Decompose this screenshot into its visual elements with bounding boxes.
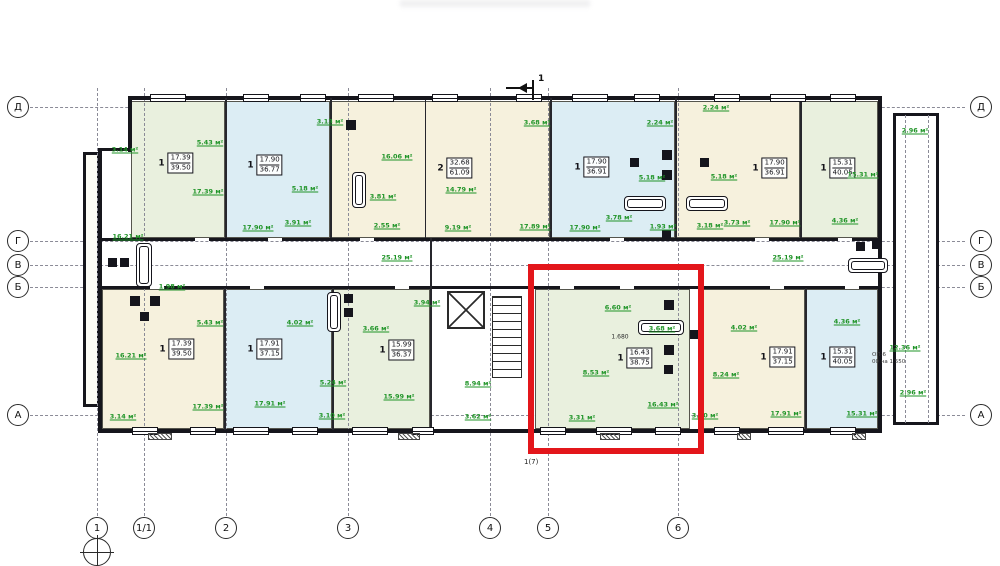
- axis-bubble-col-4: 4: [479, 517, 501, 539]
- window-glass-line: [715, 98, 739, 99]
- fixture-shaft-box: [662, 230, 671, 239]
- room-area-label: 8.94 м²: [465, 381, 491, 388]
- window: [190, 427, 216, 435]
- fixture-shaft-box: [120, 258, 129, 267]
- room-area-label: 1.93 м²: [650, 224, 676, 231]
- apartment-label: 117.9036.91: [752, 158, 787, 179]
- apartment-room-count: 1: [159, 344, 165, 354]
- room-area-label: 15.31 м²: [848, 172, 879, 179]
- room-area-label: 15.31 м²: [847, 411, 878, 418]
- exterior-wall: [128, 96, 132, 152]
- axis-row-line: [30, 241, 965, 242]
- axis-bubble-col-2: 2: [215, 517, 237, 539]
- apartment-living-area: 17.91: [260, 340, 280, 350]
- floor-plan-canvas: 1 ОП-6 00 на 1 550 1(7) ДДГГВВББАА11/123…: [0, 0, 1000, 566]
- window-glass-line: [433, 98, 457, 99]
- room-area-label: 5.18 м²: [292, 186, 318, 193]
- window: [714, 94, 740, 102]
- elevator-x-icon: [449, 293, 483, 327]
- right-wing: [893, 113, 939, 425]
- stair-flight: [492, 296, 522, 378]
- window-glass-line: [353, 431, 387, 432]
- axis-bubble-row-Б: Б: [7, 276, 29, 298]
- apartment-area-box: 17.9036.77: [257, 155, 283, 176]
- room-area-label: 2.96 м²: [902, 128, 928, 135]
- axis-bubble-row-Д: Д: [970, 96, 992, 118]
- axis-col-line: [490, 88, 491, 516]
- apartment-living-area: 15.99: [392, 341, 412, 351]
- axis-bubble-col-6: 6: [667, 517, 689, 539]
- room-area-label: 25.19 м²: [773, 255, 804, 262]
- axis-bubble-row-Г: Г: [970, 230, 992, 252]
- fixture-shaft-box: [344, 308, 353, 317]
- section-cut-arrow-icon: [518, 83, 527, 93]
- fixture-shaft-box: [630, 158, 639, 167]
- window: [634, 94, 660, 102]
- highlighted-apartment-box: [528, 264, 704, 454]
- window-glass-line: [133, 431, 157, 432]
- apartment-label: 117.3939.50: [159, 339, 194, 360]
- window: [243, 94, 269, 102]
- section-cut-number: 1: [538, 74, 544, 84]
- apartment-room-count: 1: [760, 352, 766, 362]
- axis-row-line: [30, 265, 965, 266]
- door-opening: [268, 238, 282, 241]
- bathtub: [686, 196, 728, 211]
- bathtub: [136, 243, 152, 287]
- apartment-label: 232.6861.09: [437, 158, 472, 179]
- window-glass-line: [293, 431, 317, 432]
- hatched-ledge: [398, 433, 420, 440]
- window: [150, 94, 186, 102]
- bathtub-inner: [627, 199, 663, 208]
- apartment-living-area: 17.39: [172, 340, 192, 350]
- room-area-label: 3.73 м²: [724, 220, 750, 227]
- apartment-living-area: 15.31: [833, 159, 853, 169]
- axis-bubble-row-Д: Д: [7, 96, 29, 118]
- apartment-living-area: 32.68: [450, 159, 470, 169]
- room-area-label: 16.21 м²: [113, 234, 144, 241]
- partition-wall: [225, 98, 227, 238]
- apartment-total-area: 40.05: [833, 358, 853, 367]
- apartment-label: 117.9036.91: [574, 157, 609, 178]
- window-spec-line1: ОП-6: [872, 352, 920, 359]
- fixture-shaft-box: [662, 150, 672, 160]
- bathtub-inner: [139, 246, 149, 284]
- bathtub: [352, 172, 366, 208]
- apartment-room-count: 1: [820, 163, 826, 173]
- elevator-shaft: [447, 291, 485, 329]
- fixture-shaft-box: [130, 296, 140, 306]
- door-opening: [838, 238, 852, 241]
- door-opening: [755, 238, 769, 241]
- hatched-ledge: [852, 433, 866, 440]
- room-area-label: 2.96 м²: [900, 390, 926, 397]
- room-area-label: 3.18 м²: [697, 223, 723, 230]
- room-area-label: 4.02 м²: [731, 325, 757, 332]
- apartment-label: 115.9936.37: [379, 340, 414, 361]
- apartment-living-area: 15.31: [833, 348, 853, 358]
- section-cut-tick: [532, 80, 534, 100]
- apartment-total-area: 61.09: [450, 169, 470, 178]
- partition-wall: [805, 288, 807, 430]
- apartment-area-box: 17.3939.50: [168, 153, 194, 174]
- bathtub-inner: [689, 199, 725, 208]
- room-area-label: 25.19 м²: [382, 255, 413, 262]
- room-area-label: 5.18 м²: [711, 174, 737, 181]
- window-glass-line: [771, 98, 805, 99]
- wing-axis-line: [928, 115, 929, 423]
- section-cut-marker: 1: [504, 76, 548, 102]
- room-area-label: 17.39 м²: [193, 404, 224, 411]
- partition-wall: [430, 238, 432, 431]
- room-area-label: 3.68 м²: [524, 120, 550, 127]
- window-glass-line: [573, 98, 607, 99]
- axis-bubble-row-А: А: [970, 404, 992, 426]
- axis-bubble-row-Б: Б: [970, 276, 992, 298]
- apartment-total-area: 36.91: [587, 168, 607, 177]
- apartment-label: 117.9137.15: [760, 347, 795, 368]
- room-area-label: 14.79 м²: [446, 187, 477, 194]
- apartment-total-area: 39.50: [172, 350, 192, 359]
- stair-reference-label: 1(7): [524, 458, 538, 466]
- partition-wall: [675, 98, 677, 238]
- room-area-label: 2.24 м²: [647, 120, 673, 127]
- room-area-label: 17.90 м²: [243, 225, 274, 232]
- benchmark-symbol: [83, 538, 111, 566]
- room-area-label: 17.39 м²: [193, 189, 224, 196]
- room-area-label: 9.19 м²: [445, 225, 471, 232]
- axis-bubble-row-А: А: [7, 404, 29, 426]
- apartment-area-box: 17.9036.91: [584, 157, 610, 178]
- hatched-ledge: [148, 433, 172, 440]
- window-spec-line2: 00 на 1 550: [872, 359, 920, 366]
- exterior-wall: [98, 148, 102, 433]
- fixture-shaft-box: [140, 312, 149, 321]
- apartment-area-box: 17.9036.91: [762, 158, 788, 179]
- window: [770, 94, 806, 102]
- window: [830, 94, 856, 102]
- bathtub-inner: [851, 261, 885, 270]
- room-area-label: 3.13 м²: [317, 119, 343, 126]
- window: [432, 94, 458, 102]
- door-opening: [610, 238, 624, 241]
- window: [768, 427, 804, 435]
- window-glass-line: [831, 98, 855, 99]
- door-opening: [195, 238, 209, 241]
- window: [300, 94, 326, 102]
- room-area-label: 5.24 м²: [320, 380, 346, 387]
- apartment-room-count: 2: [437, 163, 443, 173]
- room-area-label: 3.78 м²: [606, 215, 632, 222]
- window-spec-note: ОП-6 00 на 1 550: [872, 352, 920, 366]
- window-glass-line: [234, 431, 268, 432]
- apartment-area-box: 17.3939.50: [169, 339, 195, 360]
- room-area-label: 17.91 м²: [771, 411, 802, 418]
- apartment-label: 117.9137.15: [247, 339, 282, 360]
- axis-bubble-row-В: В: [7, 254, 29, 276]
- window-glass-line: [191, 431, 215, 432]
- partition-wall: [224, 288, 226, 430]
- window: [358, 94, 394, 102]
- bathtub-inner: [330, 295, 338, 329]
- apartment-living-area: 17.90: [260, 156, 280, 166]
- axis-col-line: [144, 88, 145, 516]
- door-opening: [395, 286, 409, 289]
- window-glass-line: [359, 98, 393, 99]
- apartment-living-area: 17.91: [773, 348, 793, 358]
- apartment-area-box: 15.3140.05: [830, 347, 856, 368]
- room-area-label: 5.43 м²: [197, 320, 223, 327]
- apartment-living-area: 17.90: [765, 159, 785, 169]
- fixture-shaft-box: [346, 120, 356, 130]
- axis-bubble-col-3: 3: [337, 517, 359, 539]
- apartment-area-box: 32.6861.09: [447, 158, 473, 179]
- apartment-living-area: 17.90: [587, 158, 607, 168]
- hatched-ledge: [737, 433, 751, 440]
- apartment-total-area: 36.91: [765, 169, 785, 178]
- window: [572, 94, 608, 102]
- fixture-shaft-box: [856, 242, 865, 251]
- fixture-shaft-box: [700, 158, 709, 167]
- room-area-label: 2.24 м²: [703, 105, 729, 112]
- window-glass-line: [831, 431, 855, 432]
- door-opening: [770, 286, 784, 289]
- room-area-label: 2.55 м²: [374, 223, 400, 230]
- window-glass-line: [635, 98, 659, 99]
- fixture-shaft-box: [150, 296, 160, 306]
- window: [352, 427, 388, 435]
- bathtub-inner: [355, 175, 363, 205]
- window-glass-line: [413, 431, 433, 432]
- room-area-label: 8.24 м²: [713, 372, 739, 379]
- clipped-drawing-title: [400, 0, 590, 7]
- axis-bubble-col-1/1: 1/1: [133, 517, 155, 539]
- apartment-total-area: 36.77: [260, 166, 280, 175]
- fixture-shaft-box: [872, 240, 881, 249]
- apartment-room-count: 1: [820, 352, 826, 362]
- window: [233, 427, 269, 435]
- window-glass-line: [244, 98, 268, 99]
- fixture-shaft-box: [108, 258, 117, 267]
- window-glass-line: [769, 431, 803, 432]
- apartment-room-count: 1: [379, 345, 385, 355]
- door-opening: [250, 286, 264, 289]
- partition-wall: [550, 98, 552, 238]
- room-area-label: 17.90 м²: [770, 220, 801, 227]
- room-area-label: 12.36 м²: [890, 345, 921, 352]
- bathtub: [327, 292, 341, 332]
- door-opening: [360, 238, 374, 241]
- benchmark-cross-v: [97, 535, 98, 566]
- room-area-label: 3.66 м²: [363, 326, 389, 333]
- apartment-total-area: 39.50: [171, 164, 191, 173]
- room-area-label: 3.14 м²: [110, 414, 136, 421]
- room-area-label: 4.36 м²: [834, 319, 860, 326]
- room-area-label: 4.36 м²: [832, 218, 858, 225]
- window-glass-line: [715, 431, 739, 432]
- apartment-area-box: 15.9936.37: [389, 340, 415, 361]
- apartment-total-area: 37.15: [773, 358, 793, 367]
- apartment-room-count: 1: [247, 160, 253, 170]
- room-area-label: 5.43 м²: [197, 140, 223, 147]
- apartment-total-area: 37.15: [260, 350, 280, 359]
- apartment-area-box: 17.9137.15: [770, 347, 796, 368]
- room-area-label: 16.21 м²: [116, 353, 147, 360]
- apartment-total-area: 36.37: [392, 351, 412, 360]
- axis-bubble-col-5: 5: [537, 517, 559, 539]
- bathtub: [848, 258, 888, 273]
- room-area-label: 4.02 м²: [287, 320, 313, 327]
- window-glass-line: [151, 98, 185, 99]
- room-area-label: 17.89 м²: [520, 224, 551, 231]
- apartment-room-count: 1: [574, 162, 580, 172]
- axis-bubble-row-Г: Г: [7, 230, 29, 252]
- apartment-room-count: 1: [752, 163, 758, 173]
- room-area-label: 3.81 м²: [370, 194, 396, 201]
- window-glass-line: [301, 98, 325, 99]
- partition-wall: [425, 100, 426, 238]
- room-area-label: 17.90 м²: [570, 225, 601, 232]
- apartment-label: 117.9036.77: [247, 155, 282, 176]
- door-opening: [845, 286, 859, 289]
- apartment-room-count: 1: [158, 158, 164, 168]
- room-area-label: 3.14 м²: [112, 147, 138, 154]
- apartment-label: 117.3939.50: [158, 153, 193, 174]
- apartment-area-box: 17.9137.15: [257, 339, 283, 360]
- wing-axis-line: [905, 115, 906, 423]
- apartment-room-count: 1: [247, 344, 253, 354]
- room-area-label: 15.99 м²: [384, 394, 415, 401]
- room-area-label: 3.94 м²: [414, 300, 440, 307]
- fixture-shaft-box: [344, 294, 353, 303]
- apartment-living-area: 17.39: [171, 154, 191, 164]
- apartment-label: 115.3140.05: [820, 347, 855, 368]
- room-area-label: 17.91 м²: [255, 401, 286, 408]
- window: [292, 427, 318, 435]
- axis-bubble-row-В: В: [970, 254, 992, 276]
- room-area-label: 5.18 м²: [639, 175, 665, 182]
- exterior-wall: [100, 286, 878, 289]
- room-area-label: 1.98 м²: [159, 284, 185, 291]
- room-area-label: 16.06 м²: [382, 154, 413, 161]
- room-area-label: 3.62 м²: [465, 414, 491, 421]
- partition-wall: [800, 98, 802, 238]
- room-area-label: 3.91 м²: [285, 220, 311, 227]
- bathtub: [624, 196, 666, 211]
- room-area-label: 3.10 м²: [319, 413, 345, 420]
